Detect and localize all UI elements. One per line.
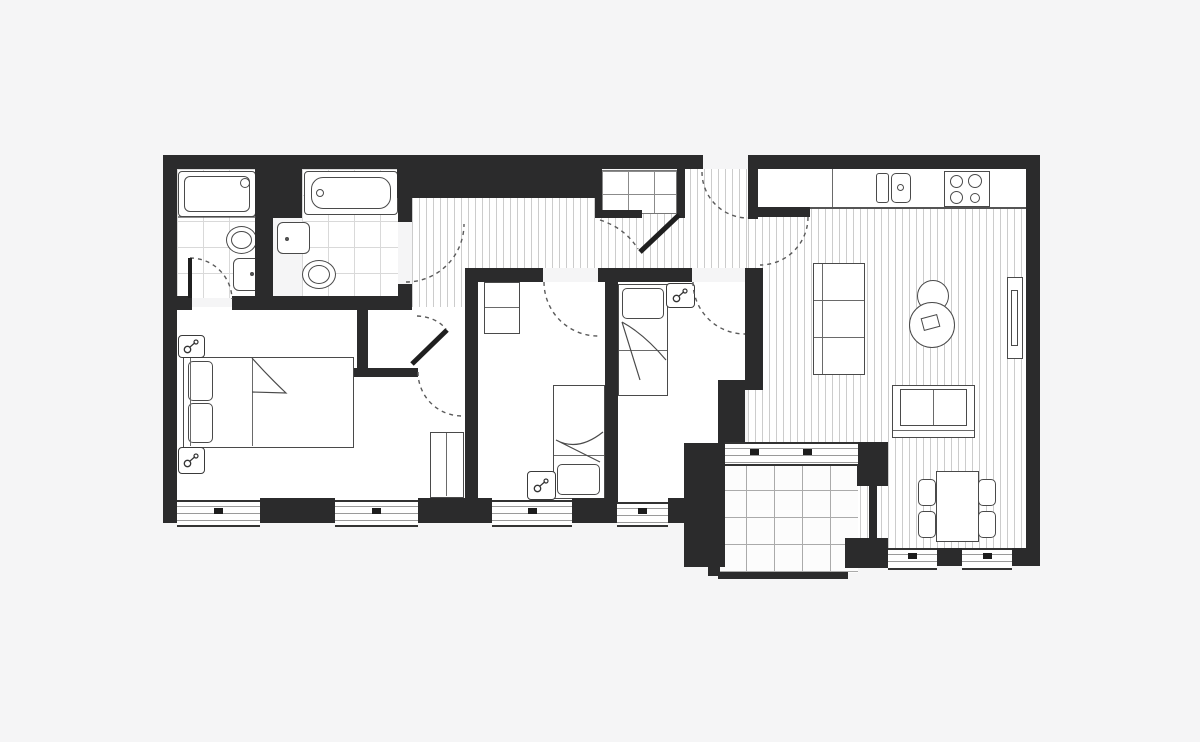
pillow — [188, 403, 213, 443]
wall-vestibule-horizontal — [758, 207, 810, 217]
dining-table — [936, 471, 979, 542]
window-tick — [528, 508, 537, 514]
main-toilet-seat — [308, 265, 330, 284]
ensuite-basin-tap — [250, 272, 254, 276]
pillow — [557, 464, 600, 495]
sink-drain — [897, 184, 904, 191]
tv-screen — [1011, 290, 1018, 346]
sofa-back-line — [893, 430, 974, 431]
wall-cupboard-left — [357, 310, 368, 368]
pillow — [188, 361, 213, 401]
master-wardrobe — [430, 432, 464, 498]
kitchen-sink-left — [876, 173, 889, 203]
balcony-sliding-door — [725, 442, 858, 466]
window-tick — [908, 553, 917, 559]
wall-bedroom3-right — [745, 268, 763, 390]
window-living-2 — [962, 548, 1012, 570]
window-tick — [983, 553, 992, 559]
wall-top-kitchen — [748, 155, 1040, 169]
window-tick — [214, 508, 223, 514]
wall-bedroom2-top — [465, 268, 543, 282]
tall-cabinet — [813, 263, 865, 375]
wall-pier-1 — [260, 498, 335, 523]
wall-vestibule-vertical — [748, 169, 758, 219]
wall-bathroom-right-upper — [398, 198, 412, 222]
window-living-1 — [888, 548, 937, 570]
ensuite-toilet-seat — [231, 231, 252, 249]
wall-bathroom-divider-upper — [255, 155, 302, 218]
dining-chair — [918, 479, 936, 506]
wall-closet-bottom — [598, 210, 642, 218]
hob-ring — [970, 193, 980, 203]
dining-chair — [918, 511, 936, 538]
utility-symbol-icon — [178, 335, 205, 358]
balcony-rail-right — [869, 486, 877, 540]
bed2-line — [554, 455, 604, 456]
wall-left — [163, 155, 177, 523]
wall-ensuite-door-jamb — [177, 296, 192, 310]
wall-living-step — [718, 380, 745, 443]
dining-chair — [978, 479, 996, 506]
hob-ring — [968, 174, 982, 188]
wall-bathroom-divider-lower — [255, 218, 273, 298]
wall-bathroom-right-lower — [398, 284, 412, 310]
wall-basin-tap — [285, 237, 289, 241]
counter-divider-line — [832, 169, 833, 207]
wall-balcony-pier-right — [857, 442, 888, 486]
entry-hall-floor — [683, 169, 748, 268]
wall-right — [1026, 155, 1040, 566]
wall-pier-3 — [572, 498, 617, 523]
sliding-door-tick — [803, 449, 812, 455]
utility-symbol-icon — [178, 447, 205, 474]
floor-plan-canvas — [0, 0, 1200, 742]
wall-corridor-bottom — [598, 268, 692, 282]
wall-top-band — [397, 155, 598, 198]
wardrobe2-line — [485, 307, 519, 308]
cabinet-back-line — [822, 264, 823, 374]
bedroom2-wardrobe — [484, 282, 520, 334]
wall-top-closet — [598, 155, 703, 169]
bed-headboard-line — [190, 358, 191, 446]
pillow — [622, 288, 664, 319]
window-tick — [372, 508, 381, 514]
wardrobe-line — [446, 433, 447, 496]
sliding-door-tick — [750, 449, 759, 455]
window-bedroom3 — [617, 502, 668, 527]
wall-bedroom-divider — [605, 282, 618, 502]
balcony-floor — [718, 462, 858, 573]
wall-bedroom2-left — [465, 268, 478, 502]
hob-ring — [950, 175, 963, 188]
utility-symbol-icon — [666, 283, 695, 308]
hob-ring — [950, 191, 963, 204]
wall-cupboard-bottom — [354, 368, 418, 377]
wall-basin — [277, 222, 310, 254]
wall-bottom-right-pier — [937, 548, 962, 566]
hall-closet-shelves — [601, 170, 677, 214]
dining-chair — [978, 511, 996, 538]
wall-closet-right-jamb — [677, 155, 685, 218]
bathtub-drain — [316, 189, 324, 197]
cabinet-shelf-line — [814, 300, 864, 301]
utility-symbol-icon — [527, 471, 556, 500]
sofa-cushion-line — [933, 390, 934, 425]
bed3-line — [619, 350, 667, 351]
wall-bottom-right-corner — [1012, 548, 1040, 566]
bed-duvet-line — [252, 358, 253, 446]
wall-balcony-block-br — [845, 538, 888, 568]
balcony-rail-bottom — [718, 572, 848, 579]
wall-pier-2 — [418, 498, 492, 523]
window-tick — [638, 508, 647, 514]
wall-bathroom-bottom — [232, 296, 398, 310]
cabinet-shelf-line — [814, 337, 864, 338]
shower-drain — [240, 178, 250, 188]
